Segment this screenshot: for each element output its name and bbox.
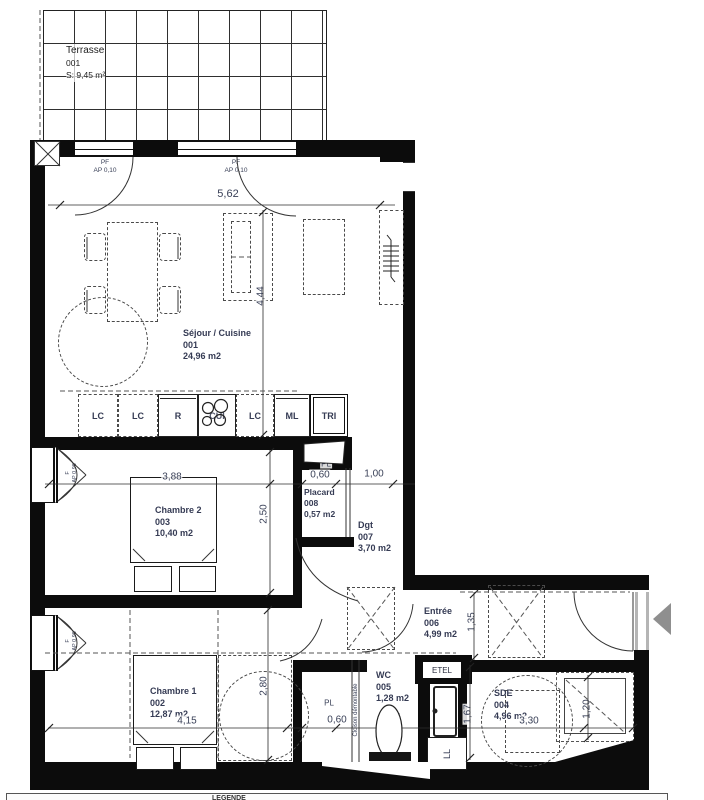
bed-ch1-pillow	[136, 747, 174, 770]
dim-ch2-d: 2,50	[259, 503, 270, 524]
room-name: Placard	[304, 487, 335, 498]
unit-label: LC	[132, 411, 144, 421]
dim-entree-d: 1,35	[467, 611, 478, 632]
unit-label: R	[175, 411, 182, 421]
label-cloison: Cloison démontable	[353, 682, 359, 737]
dim-sde-w: 3,30	[518, 716, 539, 727]
wall-right-lower	[634, 650, 649, 762]
label-pl-ch1: PL	[323, 699, 335, 708]
room-number: 004	[494, 700, 527, 712]
dim-placard-w: 0,60	[309, 470, 330, 481]
chair	[159, 286, 181, 314]
dim-shower-w: 1,20	[582, 698, 593, 719]
room-number: 001	[183, 340, 251, 352]
unit-label: LC	[249, 411, 261, 421]
sofa-seat	[231, 221, 251, 293]
door-sill	[646, 592, 649, 650]
counter-edge	[276, 398, 308, 399]
unit-label: ML	[286, 411, 299, 421]
kitchen-unit-lc1: LC	[78, 394, 118, 437]
bed-ch1-pillow	[180, 747, 217, 770]
opening-sill: AP 0,10	[86, 167, 124, 175]
opening-label-pf1: PF AP 0,10	[86, 159, 124, 175]
legend-box: LEGENDE	[6, 793, 668, 800]
window-pf-2	[178, 140, 296, 157]
room-number: 005	[376, 682, 409, 694]
room-area: 3,70 m2	[358, 543, 391, 555]
clearance-ch1	[218, 655, 292, 761]
kitchen-unit-lc3: LC	[236, 394, 274, 437]
kitchen-unit-cui: CUI	[198, 394, 236, 437]
chair	[159, 233, 181, 261]
window-pf-1	[75, 140, 133, 157]
wall-placard-bottom	[296, 537, 354, 547]
wall-wc-top	[302, 660, 367, 672]
dim-dgt-w: 1,00	[363, 469, 384, 480]
wall-top-b	[133, 140, 178, 157]
room-number: 006	[424, 618, 457, 630]
room-label-entree: Entrée 006 4,99 m2	[424, 606, 457, 641]
dim-wc-w: 1,05	[380, 713, 401, 724]
dim-ch2-w: 3,88	[161, 472, 182, 483]
chair	[84, 233, 106, 261]
room-number: 008	[304, 498, 335, 509]
opening-code: PF	[216, 159, 256, 167]
kitchen-unit-lc2: LC	[118, 394, 158, 437]
terrace-number: 001	[66, 58, 105, 70]
dim-closet-w: 0,60	[326, 715, 347, 726]
room-area: 10,40 m2	[155, 528, 202, 540]
room-name: Chambre 2	[155, 505, 202, 517]
entrance-arrow-icon	[653, 603, 671, 635]
unit-label: CUI	[209, 411, 225, 421]
radiator	[379, 210, 404, 305]
wall-right-upper	[403, 140, 415, 590]
wall-niche	[403, 162, 415, 192]
kitchen-unit-tri: TRI	[310, 394, 348, 437]
kitchen-unit-ml: ML	[274, 394, 310, 437]
room-label-chambre2: Chambre 2 003 10,40 m2	[155, 505, 202, 540]
wall-kitchen	[30, 437, 302, 450]
kitchen-unit-r: R	[158, 394, 198, 437]
dim-ch1-w: 4,15	[176, 716, 197, 727]
opening-label-pf2: PF AP 0,10	[216, 159, 256, 175]
room-name: Dgt	[358, 520, 391, 532]
room-label-sejour: Séjour / Cuisine 001 24,96 m2	[183, 328, 251, 363]
opening-code: F	[65, 453, 72, 493]
room-name: Entrée	[424, 606, 457, 618]
room-area: 24,96 m2	[183, 351, 251, 363]
unit-label: LC	[92, 411, 104, 421]
terrace-label: Terrasse 001 S: 9,45 m²	[66, 44, 105, 82]
room-number: 007	[358, 532, 391, 544]
window-f-2	[31, 615, 58, 671]
entry-closet	[488, 585, 545, 658]
floor-plan: Terrasse 001 S: 9,45 m² LC LC R CUI LC M…	[0, 0, 704, 800]
label-pl-placard: PL	[320, 460, 332, 469]
opening-label-f2: F AP 0,90	[65, 621, 79, 661]
window-f-1	[31, 447, 58, 503]
room-number: 003	[155, 517, 202, 529]
room-number: 002	[150, 698, 197, 710]
counter-edge	[160, 398, 196, 399]
room-name: WC	[376, 670, 409, 682]
dim-living-w: 5,62	[216, 188, 239, 200]
room-label-wc: WC 005 1,28 m2	[376, 670, 409, 705]
room-label-dgt: Dgt 007 3,70 m2	[358, 520, 391, 555]
bed-ch2-pillow	[134, 566, 172, 592]
dim-ch1-d: 2,80	[259, 675, 270, 696]
opening-code: PF	[86, 159, 124, 167]
terrace-name: Terrasse	[66, 44, 105, 58]
wall-ch2-right	[293, 450, 302, 608]
washer-ll: LL	[427, 737, 467, 770]
column-marker	[34, 141, 60, 166]
room-name: Séjour / Cuisine	[183, 328, 251, 340]
wall-sde-top	[472, 660, 634, 672]
etel-label: ETEL	[432, 666, 452, 675]
etel-box: ETEL	[423, 662, 461, 678]
room-area: 0,57 m2	[304, 509, 335, 520]
shower-tray	[564, 678, 626, 734]
room-area: 1,28 m2	[376, 693, 409, 705]
washer-label: LL	[442, 748, 452, 758]
dim-sde-d: 1,67	[463, 703, 474, 724]
room-area: 4,99 m2	[424, 629, 457, 641]
legend-title: LEGENDE	[212, 795, 246, 800]
opening-code: F	[65, 621, 72, 661]
bed-ch2-pillow	[179, 566, 216, 592]
unit-label: TRI	[322, 411, 337, 421]
opening-sill: AP 0,10	[216, 167, 256, 175]
terrace-area: S: 9,45 m²	[66, 70, 105, 82]
opening-label-f1: F AP 0,90	[65, 453, 79, 493]
room-name: Chambre 1	[150, 686, 197, 698]
opening-sill: AP 0,90	[72, 621, 79, 661]
ceiling-hatch	[347, 587, 395, 650]
room-label-placard: Placard 008 0,57 m2	[304, 487, 335, 520]
sde-door-panel	[433, 686, 457, 737]
dim-living-d: 4,44	[256, 285, 267, 306]
room-name: SDE	[494, 688, 527, 700]
door-sill	[635, 592, 638, 650]
wall-ch1-top	[30, 595, 293, 608]
round-table	[58, 297, 148, 387]
opening-sill: AP 0,90	[72, 453, 79, 493]
coffee-table	[303, 219, 345, 295]
wall-bottom	[30, 762, 649, 790]
